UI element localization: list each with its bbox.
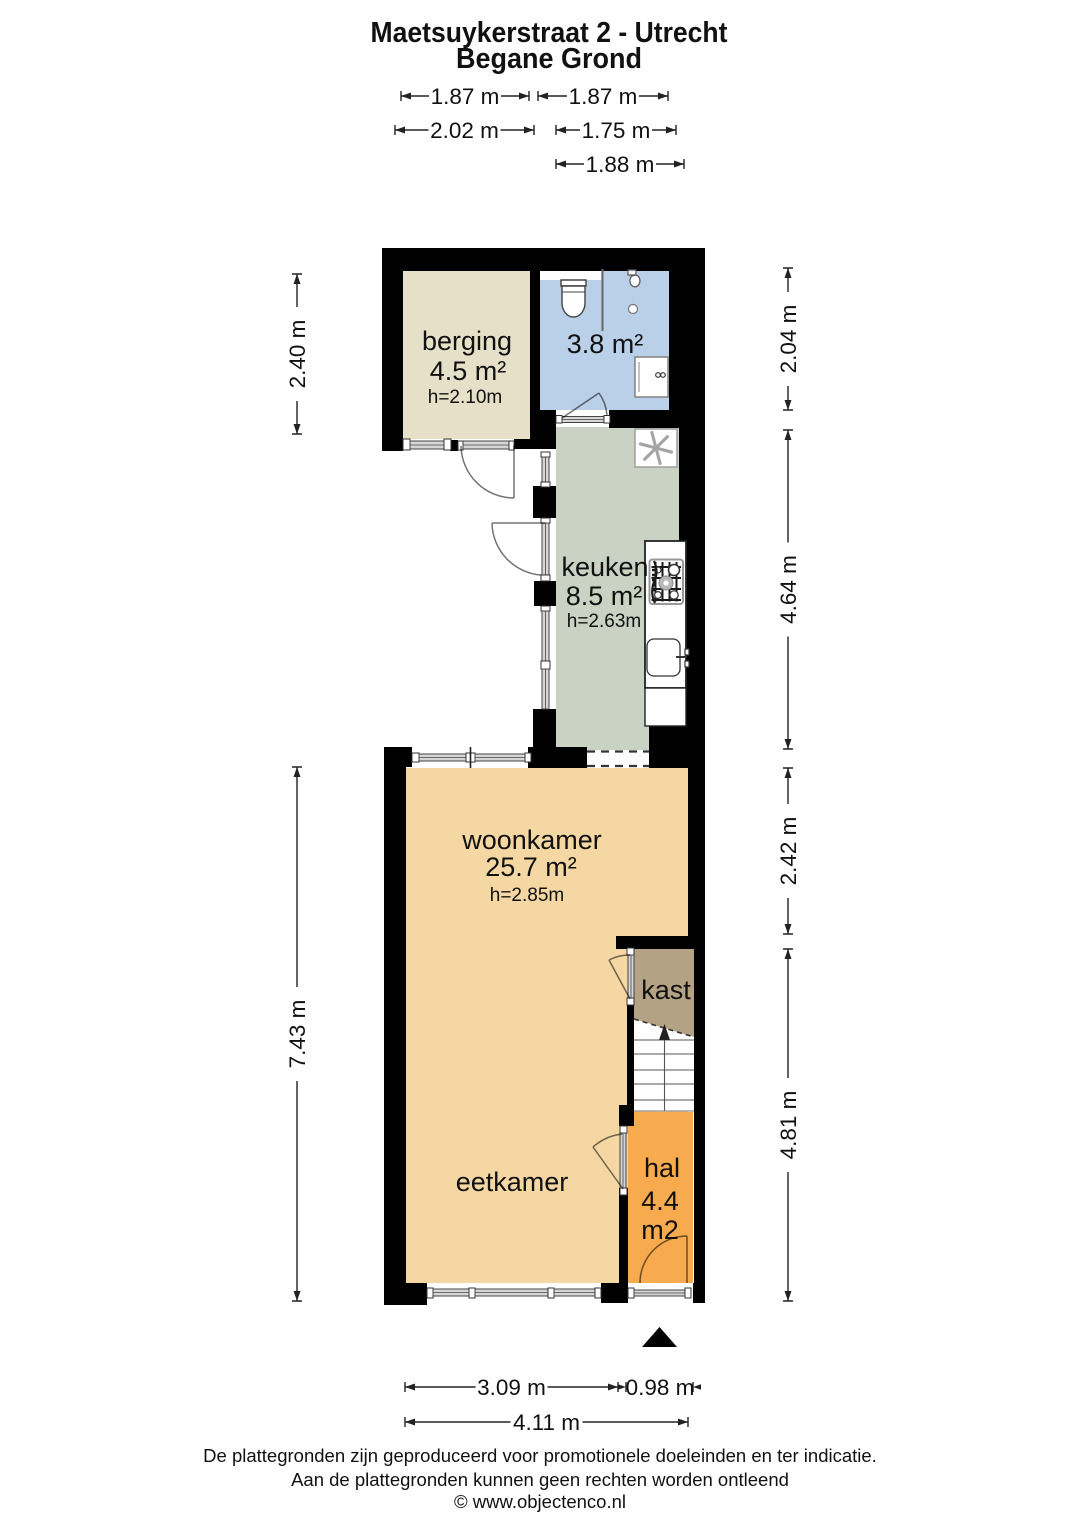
svg-text:4.64 m: 4.64 m bbox=[776, 555, 801, 624]
svg-text:4.5 m²: 4.5 m² bbox=[430, 356, 507, 386]
svg-text:1.88 m: 1.88 m bbox=[586, 152, 655, 177]
svg-text:8.5 m²: 8.5 m² bbox=[566, 581, 643, 611]
svg-text:4.4: 4.4 bbox=[641, 1186, 679, 1216]
svg-text:7.43 m: 7.43 m bbox=[285, 1000, 310, 1069]
svg-text:berging: berging bbox=[422, 326, 512, 356]
svg-text:h=2.63m: h=2.63m bbox=[567, 611, 641, 632]
svg-text:kast: kast bbox=[641, 975, 691, 1005]
svg-text:0.98 m: 0.98 m bbox=[626, 1375, 695, 1400]
svg-text:2.40 m: 2.40 m bbox=[285, 320, 310, 389]
svg-text:h=2.10m: h=2.10m bbox=[428, 387, 502, 408]
svg-text:h=2.85m: h=2.85m bbox=[490, 885, 564, 906]
svg-text:25.7 m²: 25.7 m² bbox=[485, 852, 577, 882]
svg-text:© www.objectenco.nl: © www.objectenco.nl bbox=[454, 1491, 626, 1512]
svg-text:Aan de plattegronden kunnen ge: Aan de plattegronden kunnen geen rechten… bbox=[291, 1469, 789, 1490]
svg-text:1.87 m: 1.87 m bbox=[431, 84, 500, 109]
svg-text:m2: m2 bbox=[641, 1215, 679, 1245]
svg-text:woonkamer: woonkamer bbox=[461, 825, 602, 855]
svg-text:De plattegronden zijn geproduc: De plattegronden zijn geproduceerd voor … bbox=[203, 1445, 877, 1466]
svg-text:2.02 m: 2.02 m bbox=[430, 118, 499, 143]
svg-text:2.04 m: 2.04 m bbox=[776, 305, 801, 374]
svg-text:hal: hal bbox=[644, 1153, 680, 1183]
svg-text:3.09 m: 3.09 m bbox=[477, 1375, 546, 1400]
svg-text:3.8 m²: 3.8 m² bbox=[567, 329, 644, 359]
svg-text:Begane Grond: Begane Grond bbox=[456, 43, 642, 75]
svg-text:4.81 m: 4.81 m bbox=[776, 1091, 801, 1160]
svg-text:keuken: keuken bbox=[561, 552, 648, 582]
svg-text:eetkamer: eetkamer bbox=[456, 1167, 569, 1197]
svg-text:4.11 m: 4.11 m bbox=[513, 1410, 580, 1435]
svg-text:1.87 m: 1.87 m bbox=[569, 84, 638, 109]
svg-text:2.42 m: 2.42 m bbox=[776, 817, 801, 886]
svg-text:1.75 m: 1.75 m bbox=[582, 118, 651, 143]
